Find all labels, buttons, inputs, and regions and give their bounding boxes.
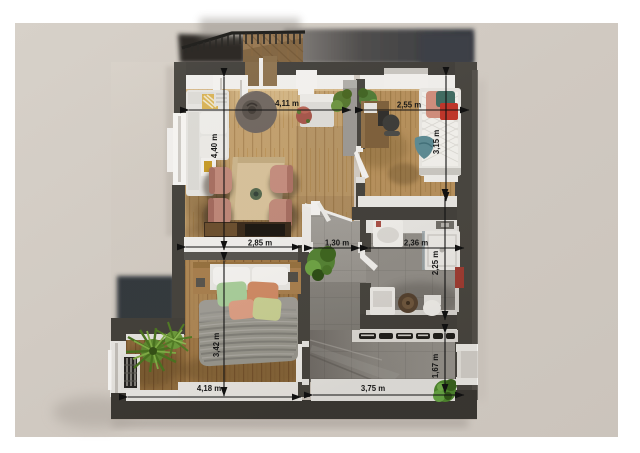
svg-text:2,55 m: 2,55 m [397, 101, 421, 110]
svg-text:3,75 m: 3,75 m [361, 384, 385, 393]
svg-text:4,11 m: 4,11 m [275, 99, 299, 108]
svg-text:1,30 m: 1,30 m [325, 239, 349, 248]
svg-text:4,40 m: 4,40 m [210, 134, 219, 158]
svg-text:2,25 m: 2,25 m [431, 251, 440, 275]
svg-text:2,85 m: 2,85 m [248, 239, 272, 248]
svg-text:1,67 m: 1,67 m [431, 354, 440, 378]
svg-text:4,18 m: 4,18 m [197, 384, 221, 393]
svg-text:2,36 m: 2,36 m [404, 239, 428, 248]
svg-text:3,15 m: 3,15 m [432, 130, 441, 154]
svg-text:3,42 m: 3,42 m [212, 333, 221, 357]
